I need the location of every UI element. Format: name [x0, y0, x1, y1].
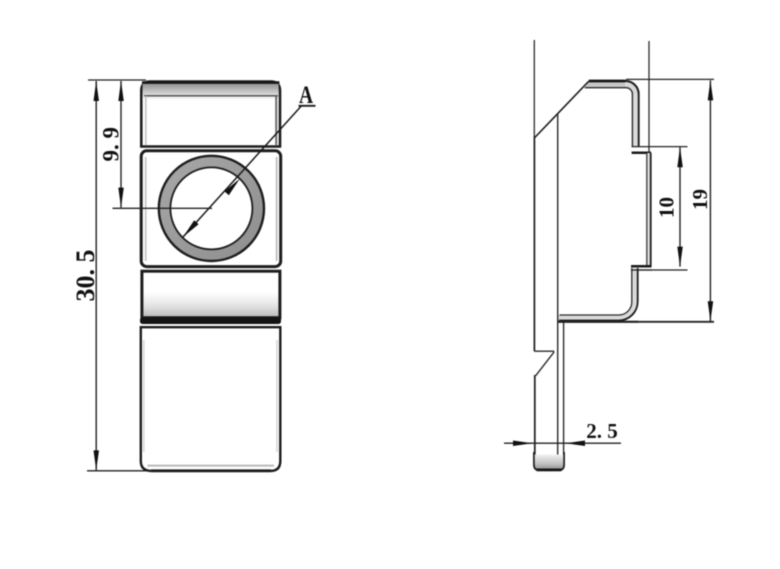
svg-text:19: 19: [688, 189, 712, 210]
svg-text:10: 10: [655, 197, 679, 218]
svg-text:A: A: [299, 81, 314, 109]
svg-text:30. 5: 30. 5: [71, 250, 100, 302]
svg-text:9. 9: 9. 9: [99, 127, 124, 162]
svg-text:2. 5: 2. 5: [586, 419, 618, 443]
